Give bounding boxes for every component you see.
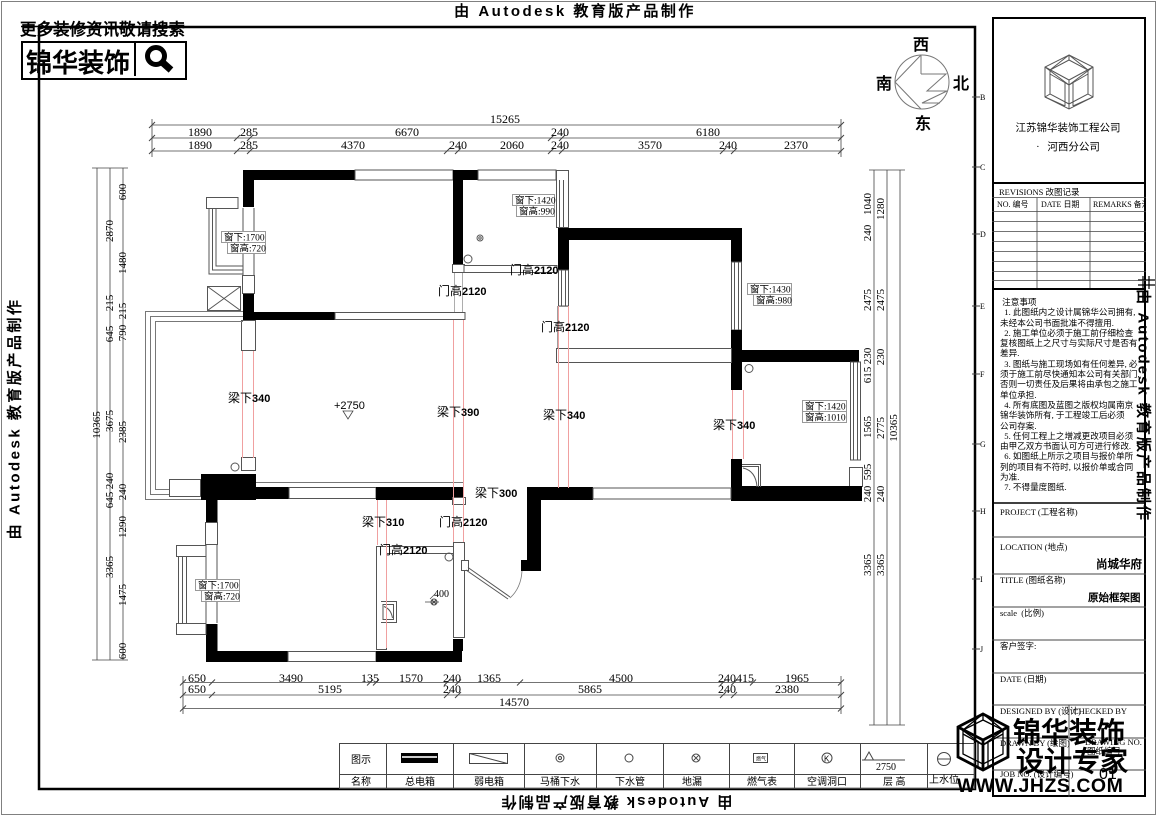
svg-text:790: 790: [117, 324, 129, 341]
svg-text:15265: 15265: [490, 112, 520, 126]
svg-text:下水管: 下水管: [615, 775, 645, 788]
svg-text:400: 400: [434, 589, 449, 600]
svg-text:595: 595: [862, 463, 874, 480]
svg-text:燃气表: 燃气表: [747, 775, 777, 788]
svg-text:窗高:1010: 窗高:1010: [805, 412, 846, 424]
svg-text:I: I: [980, 575, 983, 584]
svg-text:645: 645: [104, 491, 116, 508]
svg-text:3570: 3570: [638, 138, 662, 152]
svg-text:1565: 1565: [862, 416, 874, 439]
svg-text:梁下340: 梁下340: [543, 407, 585, 422]
svg-text:3490: 3490: [279, 671, 303, 685]
svg-text:DATE 日期: DATE 日期: [1041, 200, 1079, 209]
svg-text:南: 南: [876, 74, 892, 93]
svg-text:梁下390: 梁下390: [437, 404, 479, 419]
svg-text:B: B: [980, 93, 985, 102]
svg-text:窗高:720: 窗高:720: [204, 591, 240, 603]
svg-text:3365: 3365: [104, 556, 116, 579]
svg-text:1040: 1040: [862, 193, 874, 216]
svg-text:3365: 3365: [875, 554, 887, 577]
svg-text:2385: 2385: [117, 421, 129, 444]
svg-text:门高2120: 门高2120: [379, 542, 428, 557]
svg-text:尚城华府: 尚城华府: [1096, 557, 1142, 571]
svg-text:K: K: [824, 755, 830, 764]
svg-text:600: 600: [117, 183, 129, 200]
svg-text:NO. 编号: NO. 编号: [997, 199, 1029, 209]
svg-text:东: 东: [915, 114, 931, 133]
svg-text:总电箱: 总电箱: [405, 775, 435, 788]
svg-text:西: 西: [913, 36, 929, 54]
svg-text:240: 240: [551, 138, 569, 152]
svg-text:北: 北: [953, 75, 969, 93]
svg-text:H: H: [980, 507, 986, 516]
svg-text:240: 240: [719, 138, 737, 152]
svg-text:马桶下水: 马桶下水: [540, 775, 580, 788]
svg-text:1290: 1290: [117, 516, 129, 539]
svg-text:门高2120: 门高2120: [438, 283, 487, 298]
svg-text:DATE (日期): DATE (日期): [1000, 674, 1047, 684]
svg-text:1480: 1480: [117, 252, 129, 275]
svg-text:240: 240: [551, 125, 569, 139]
svg-text:1280: 1280: [875, 198, 887, 221]
svg-text:240: 240: [443, 682, 461, 696]
svg-text:240: 240: [104, 472, 116, 489]
svg-text:窗高:980: 窗高:980: [756, 295, 792, 307]
svg-text:1475: 1475: [117, 584, 129, 607]
svg-text:E: E: [980, 302, 985, 311]
svg-text:2475: 2475: [862, 289, 874, 312]
svg-text:梁下300: 梁下300: [475, 485, 517, 500]
svg-text:4500: 4500: [609, 671, 633, 685]
svg-text:1365: 1365: [477, 671, 501, 685]
svg-text:梁下340: 梁下340: [713, 417, 755, 432]
svg-text:240: 240: [718, 682, 736, 696]
svg-text:615: 615: [862, 366, 874, 383]
svg-text:1890: 1890: [188, 125, 212, 139]
svg-text:门高2120: 门高2120: [541, 319, 590, 334]
svg-text:600: 600: [117, 642, 129, 659]
svg-text:原始框架图: 原始框架图: [1088, 591, 1141, 604]
svg-text:1570: 1570: [399, 671, 423, 685]
svg-text:240: 240: [862, 224, 874, 241]
svg-text:6670: 6670: [395, 125, 419, 139]
svg-text:窗高:720: 窗高:720: [230, 243, 266, 255]
svg-text:215: 215: [117, 302, 129, 319]
svg-text:645: 645: [104, 325, 116, 342]
svg-text:REMARKS 备注: REMARKS 备注: [1093, 199, 1146, 209]
svg-text:空调洞口: 空调洞口: [807, 775, 847, 788]
svg-text:10365: 10365: [91, 411, 103, 439]
svg-text:窗下:1700: 窗下:1700: [224, 232, 265, 244]
svg-text:215: 215: [104, 294, 116, 311]
svg-text:窗下:1430: 窗下:1430: [750, 284, 791, 296]
svg-text:地漏: 地漏: [682, 775, 702, 788]
svg-text:240: 240: [117, 483, 129, 500]
svg-text:2475: 2475: [875, 289, 887, 312]
svg-text:上水位: 上水位: [929, 773, 959, 786]
svg-text:230: 230: [862, 347, 874, 364]
svg-text:C: C: [980, 163, 985, 172]
svg-text:窗下:1420: 窗下:1420: [515, 195, 556, 207]
svg-text:2060: 2060: [500, 138, 524, 152]
svg-text:240: 240: [875, 485, 887, 502]
svg-text:2775: 2775: [875, 417, 887, 440]
svg-text:客户签字:: 客户签字:: [1000, 641, 1036, 651]
svg-text:650: 650: [188, 682, 206, 696]
svg-text:J: J: [980, 645, 983, 654]
svg-text:梁下340: 梁下340: [228, 390, 270, 405]
svg-text:240: 240: [862, 485, 874, 502]
svg-text:门高2120: 门高2120: [439, 514, 488, 529]
svg-text:PROJECT (工程名称): PROJECT (工程名称): [1000, 507, 1078, 517]
svg-text:240: 240: [449, 138, 467, 152]
svg-text:10365: 10365: [888, 414, 900, 442]
svg-text:图示: 图示: [351, 754, 371, 766]
svg-text:梁下310: 梁下310: [362, 514, 404, 529]
svg-text:2370: 2370: [784, 138, 808, 152]
svg-text:14570: 14570: [499, 695, 529, 709]
svg-text:scale (比例): scale (比例): [1000, 608, 1044, 618]
svg-text:3675: 3675: [104, 410, 116, 433]
svg-text:+2750: +2750: [334, 400, 365, 412]
svg-text:285: 285: [240, 138, 258, 152]
svg-text:F: F: [980, 370, 985, 379]
svg-text:燃气: 燃气: [756, 756, 766, 763]
svg-text:1890: 1890: [188, 138, 212, 152]
svg-text:3365: 3365: [862, 554, 874, 577]
svg-text:5195: 5195: [318, 682, 342, 696]
svg-text:窗高:990: 窗高:990: [519, 206, 555, 218]
svg-text:LOCATION (地点): LOCATION (地点): [1000, 542, 1067, 552]
svg-text:窗下:1420: 窗下:1420: [805, 401, 846, 413]
svg-text:弱电箱: 弱电箱: [474, 775, 504, 788]
svg-text:285: 285: [240, 125, 258, 139]
svg-text:2750: 2750: [876, 762, 896, 773]
svg-text:TITLE (图纸名称): TITLE (图纸名称): [1000, 575, 1066, 585]
svg-text:135: 135: [361, 671, 379, 685]
svg-text:层 高: 层 高: [883, 775, 906, 788]
svg-text:4370: 4370: [341, 138, 365, 152]
svg-text:6180: 6180: [696, 125, 720, 139]
svg-text:5865: 5865: [578, 682, 602, 696]
svg-text:门高2120: 门高2120: [510, 262, 559, 277]
svg-text:G: G: [980, 440, 986, 449]
svg-text:230: 230: [875, 348, 887, 365]
svg-text:2870: 2870: [104, 220, 116, 243]
svg-text:415: 415: [736, 671, 754, 685]
svg-text:2380: 2380: [775, 682, 799, 696]
svg-text:D: D: [980, 230, 986, 239]
svg-text:窗下:1700: 窗下:1700: [198, 580, 239, 592]
svg-text:名称: 名称: [351, 775, 371, 788]
